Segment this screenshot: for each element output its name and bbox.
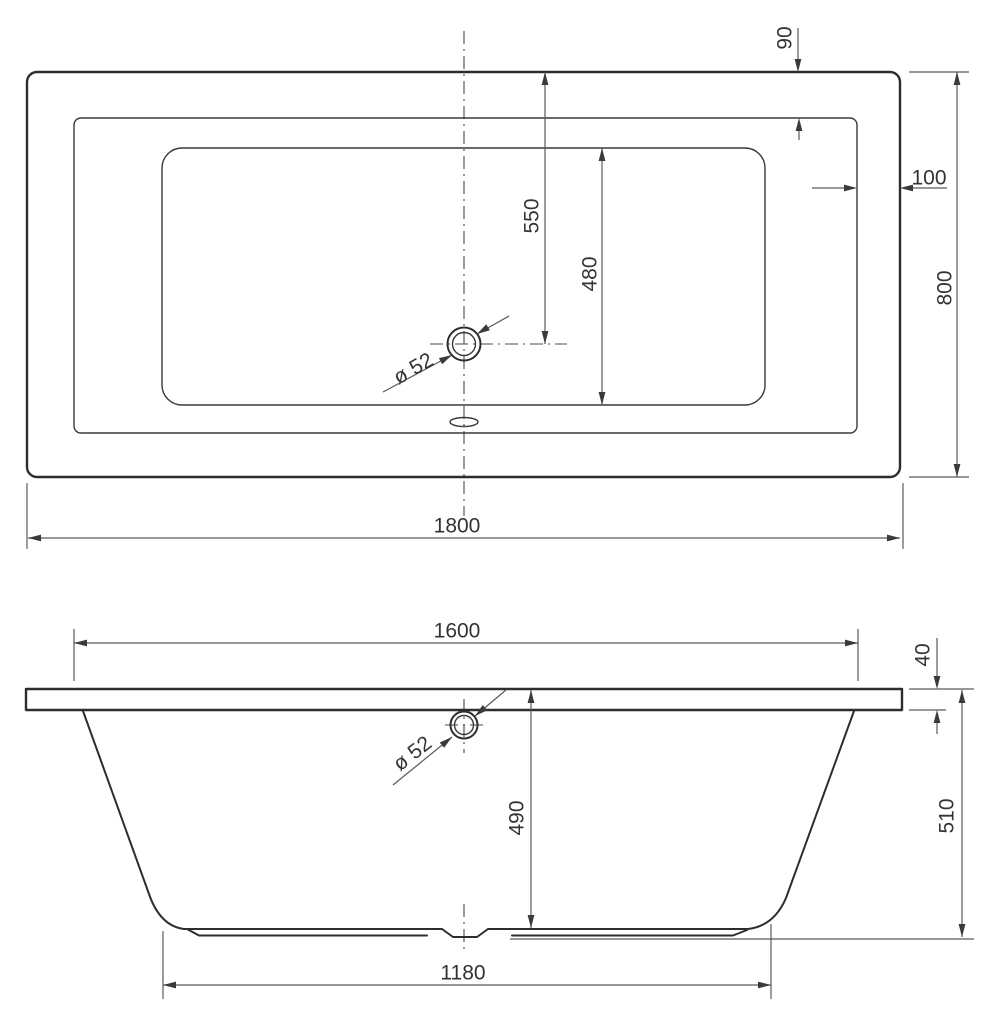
dim-label-base-length: 1180	[440, 961, 485, 984]
dim-label-inner-rim-length: 1600	[434, 619, 481, 642]
dim-label-inner-depth: 490	[505, 800, 528, 835]
rim-inner-edge	[74, 118, 857, 433]
bathtub-side-view: 1600 40 510 490 ø 52 1180	[26, 619, 974, 999]
bathtub-top-view: 90 100 800 550 480 ø 52 1800	[27, 26, 969, 549]
drawing-canvas: 90 100 800 550 480 ø 52 1800	[0, 0, 998, 1024]
dim-label-overall-height: 510	[935, 798, 958, 833]
dim-label-overall-width: 800	[933, 270, 956, 305]
base-foot-right	[512, 930, 747, 936]
dim-label-drain-from-edge: 550	[520, 198, 543, 233]
dim-overall-height	[959, 690, 966, 937]
dim-label-drain-diameter-top: ø 52	[389, 348, 437, 389]
dim-inner-depth	[528, 690, 535, 928]
dim-label-overall-length: 1800	[434, 514, 481, 537]
dim-label-rim-right: 100	[911, 166, 946, 189]
dim-label-rim-thickness: 40	[911, 643, 934, 666]
tub-body-profile	[83, 711, 854, 937]
technical-drawing: 90 100 800 550 480 ø 52 1800	[0, 0, 998, 1024]
drain-leader-lines	[393, 690, 506, 785]
dim-label-basin-width: 480	[578, 256, 601, 291]
dim-label-rim-top: 90	[773, 26, 796, 49]
